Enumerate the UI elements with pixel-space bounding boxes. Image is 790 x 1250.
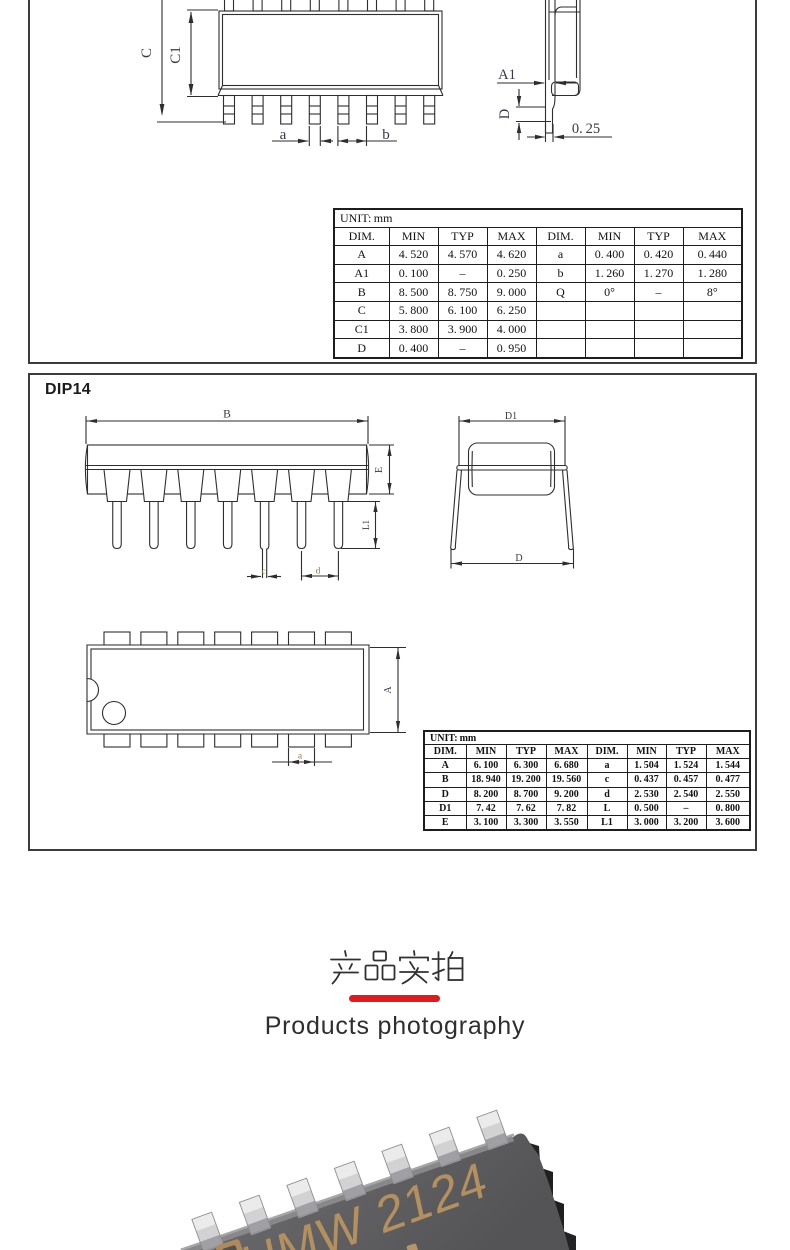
svg-text:D: D (515, 553, 522, 564)
svg-text:0. 25: 0. 25 (572, 121, 600, 137)
svg-text:B: B (223, 409, 231, 421)
svg-text:a: a (280, 127, 287, 143)
svg-text:A1: A1 (498, 67, 516, 83)
svg-text:c: c (262, 566, 266, 576)
svg-text:E: E (374, 467, 385, 473)
svg-text:a: a (298, 752, 303, 762)
svg-text:A: A (383, 686, 394, 694)
svg-text:L1: L1 (361, 520, 371, 530)
svg-text:b: b (382, 127, 390, 143)
svg-text:C: C (139, 48, 155, 58)
svg-text:D1: D1 (505, 411, 517, 422)
svg-text:D: D (497, 109, 513, 119)
svg-text:d: d (316, 567, 321, 577)
svg-text:C1: C1 (168, 46, 184, 64)
